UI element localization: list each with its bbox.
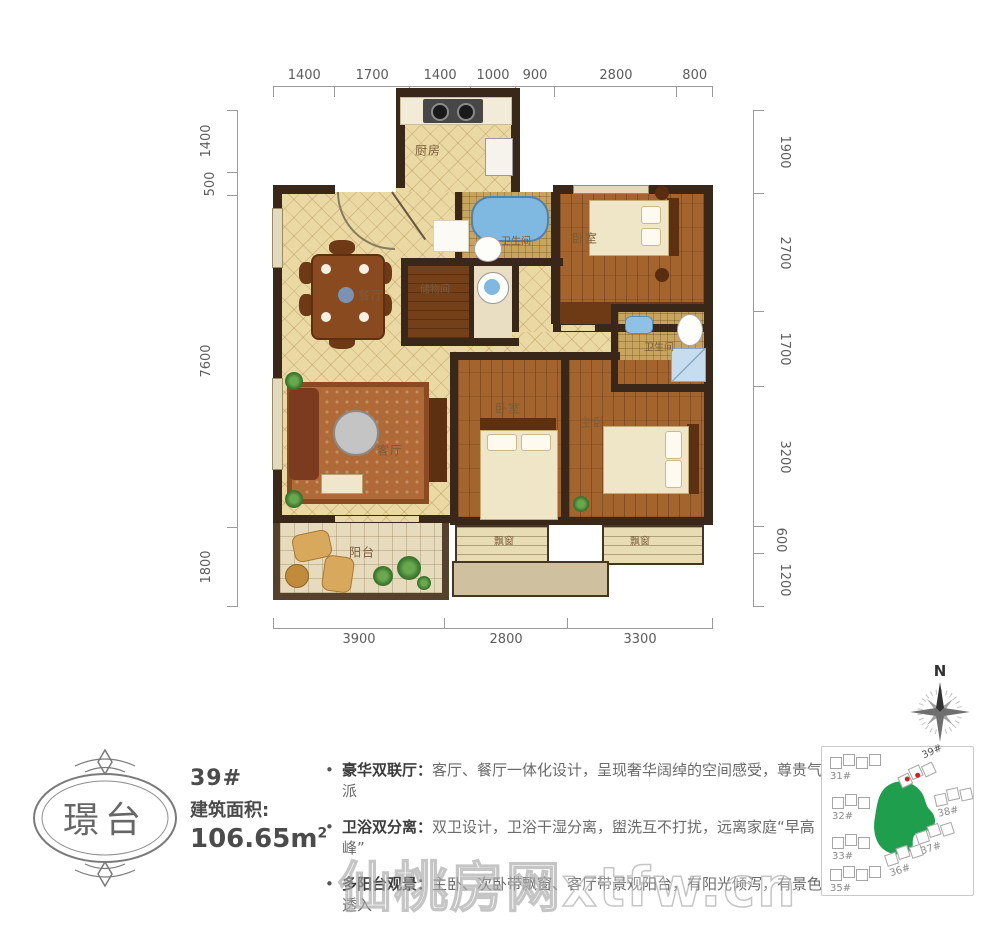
building-block	[946, 787, 960, 801]
compass: N	[903, 660, 977, 748]
plate	[321, 312, 331, 322]
room-label-dining: 餐厅	[358, 287, 384, 304]
building-label: 32#	[832, 811, 870, 822]
room-label-master: 主卧	[580, 414, 606, 431]
room-label-living: 客厅	[377, 442, 403, 459]
dimension-segment: 1400	[227, 110, 237, 172]
dimension-value: 3900	[342, 632, 375, 647]
dimension-segment: 600	[754, 526, 764, 553]
feature-item: 豪华双联厅：客厅、餐厅一体化设计，呈现奢华阔绰的空间感受，尊贵气派	[325, 760, 825, 802]
window	[272, 378, 283, 470]
dimension-segment: 3300	[567, 618, 713, 628]
dimension-value: 3300	[624, 632, 657, 647]
lower-ledge	[452, 561, 609, 597]
sink	[625, 316, 653, 334]
kitchen-mat	[433, 220, 469, 252]
tv-cabinet	[429, 398, 447, 482]
logo-ornament-top	[98, 750, 112, 774]
dimension-segment: 500	[227, 172, 237, 195]
building-32: 32#	[832, 797, 870, 822]
wall	[611, 304, 713, 312]
unit-number: 39#	[190, 766, 327, 791]
plant-icon	[285, 372, 303, 390]
dimension-value: 600	[773, 528, 788, 553]
building-block	[832, 837, 844, 849]
dimension-segment: 3900	[273, 618, 444, 628]
window	[272, 208, 283, 268]
dimension-chain-bottom: 390028003300	[273, 618, 713, 629]
building-block	[845, 834, 857, 846]
fridge	[485, 138, 513, 176]
dimension-value: 1400	[199, 125, 214, 158]
plant-icon	[573, 496, 589, 512]
dimension-segment: 2700	[754, 193, 764, 311]
wall	[450, 352, 458, 525]
building-31: 31#	[830, 757, 881, 782]
pillow	[521, 434, 551, 451]
dimension-value: 7600	[199, 345, 214, 378]
building-block	[959, 787, 973, 801]
room-label-bath2: 卫生间	[644, 339, 674, 354]
dimension-value: 2800	[490, 632, 523, 647]
building-block	[934, 793, 948, 807]
coffee-table	[321, 474, 363, 494]
dimension-segment: 1900	[754, 110, 764, 193]
balcony-table	[285, 564, 309, 588]
balcony-wall	[442, 523, 449, 600]
chair	[329, 240, 355, 255]
plate	[321, 264, 331, 274]
dimension-segment: 7600	[227, 195, 237, 527]
burner-icon	[457, 103, 475, 121]
wall	[611, 304, 618, 392]
page: 14001700140010009002800800 390028003300 …	[0, 0, 1000, 930]
building-block	[858, 837, 870, 849]
project-logo: 璟台	[30, 748, 180, 888]
wall	[401, 258, 408, 344]
logo-ornament-bottom	[98, 862, 112, 886]
building-35: 35#	[830, 869, 881, 894]
building-label: 33#	[832, 851, 870, 862]
storage-floor	[408, 266, 469, 338]
logo-text: 璟台	[63, 800, 147, 841]
room-label-balcony: 阳台	[349, 544, 375, 561]
dimension-segment: 1700	[754, 311, 764, 386]
plant-icon	[417, 576, 431, 590]
dimension-value: 900	[523, 68, 548, 83]
wall	[611, 384, 713, 392]
wall	[401, 338, 519, 346]
room-label-kitchen: 厨房	[415, 142, 441, 159]
pillow	[487, 434, 517, 451]
dimension-chain-right: 19002700170032006001200	[753, 110, 764, 607]
dimension-value: 1000	[476, 68, 509, 83]
room-label-baywindow-2: 飘窗	[630, 533, 650, 548]
bed-headboard	[480, 418, 556, 430]
building-33: 33#	[832, 837, 870, 862]
building-block	[843, 866, 855, 878]
bay-window-2	[602, 525, 704, 565]
toilet	[677, 314, 703, 346]
dimension-segment: 1200	[754, 553, 764, 607]
dimension-value: 1400	[288, 68, 321, 83]
building-block	[832, 797, 844, 809]
room-label-bedroom-mid: 卧室	[495, 400, 521, 417]
dimension-value: 2800	[599, 68, 632, 83]
building-block	[856, 757, 868, 769]
building-block	[869, 866, 881, 878]
room-label-baywindow-1: 飘窗	[494, 533, 514, 548]
burner-icon	[431, 103, 449, 121]
building-block	[845, 794, 857, 806]
balcony-wall	[273, 593, 449, 600]
compass-north-label: N	[934, 662, 947, 680]
dimension-segment: 1800	[227, 527, 237, 607]
wall	[273, 185, 335, 194]
window	[573, 185, 649, 194]
building-block	[843, 754, 855, 766]
nightstand	[655, 268, 669, 282]
wall	[469, 266, 474, 344]
building-block	[858, 797, 870, 809]
dimension-value: 1400	[424, 68, 457, 83]
wall	[561, 360, 569, 525]
sofa	[289, 388, 319, 480]
plate	[359, 264, 369, 274]
plant-icon	[397, 556, 421, 580]
wall	[396, 88, 520, 97]
dimension-value: 1200	[777, 563, 792, 596]
dimension-value: 1700	[356, 68, 389, 83]
plant-icon	[285, 490, 303, 508]
building-label: 31#	[830, 771, 881, 782]
floor-plan: 厨房 卫生间 卧室 储物间 餐厅 卫生间 客厅 卧室 主卧 阳台 飘窗 飘窗	[273, 88, 713, 605]
balcony-door-opening	[335, 516, 419, 522]
area-number: 106.65m	[190, 824, 317, 854]
plate	[359, 312, 369, 322]
room-label-bedroom-tr: 卧室	[572, 230, 598, 247]
washer-drum	[484, 279, 500, 295]
toilet	[474, 236, 502, 262]
pillow	[665, 460, 682, 488]
building-block	[856, 869, 868, 881]
dimension-value: 1900	[777, 136, 792, 169]
shower	[671, 348, 706, 382]
dimension-segment: 2800	[444, 618, 567, 628]
balcony-wall	[273, 523, 280, 600]
pillow	[641, 206, 661, 224]
site-plan: 31# 32# 33# 35# 36# 37# 38#	[821, 746, 974, 896]
door-opening	[561, 325, 595, 331]
dimension-value: 1700	[777, 333, 792, 366]
watermark: 仙桃房网xtfw.cn	[338, 843, 798, 922]
dimension-value: 1800	[199, 550, 214, 583]
dimension-value: 3200	[777, 440, 792, 473]
building-block	[830, 869, 842, 881]
centerpiece	[338, 287, 354, 303]
building-label: 35#	[830, 883, 881, 894]
feature-title: 卫浴双分离：	[342, 818, 432, 836]
unit-info: 39# 建筑面积: 106.65m2	[190, 766, 327, 854]
area-value: 106.65m2	[190, 824, 327, 854]
dimension-chain-left: 140050076001800	[227, 110, 238, 607]
building-block	[869, 754, 881, 766]
pillow	[641, 228, 661, 246]
feature-title: 豪华双联厅：	[342, 761, 432, 779]
room-label-bath1: 卫生间	[501, 233, 531, 248]
building-38: 38#	[934, 787, 976, 819]
pillow	[665, 431, 682, 459]
stove	[423, 99, 483, 123]
nightstand	[655, 186, 669, 200]
dimension-value: 800	[682, 68, 707, 83]
dimension-value: 500	[203, 171, 218, 196]
wall	[512, 266, 519, 332]
building-block	[940, 822, 955, 837]
room-label-storage: 储物间	[420, 281, 450, 296]
dimension-segment: 3200	[754, 386, 764, 526]
wall	[450, 352, 620, 360]
round-table	[333, 410, 379, 456]
area-label: 建筑面积:	[190, 796, 327, 822]
dimension-value: 2700	[777, 236, 792, 269]
building-label: 39#	[920, 742, 944, 761]
building-block	[830, 757, 842, 769]
plant-icon	[373, 566, 393, 586]
